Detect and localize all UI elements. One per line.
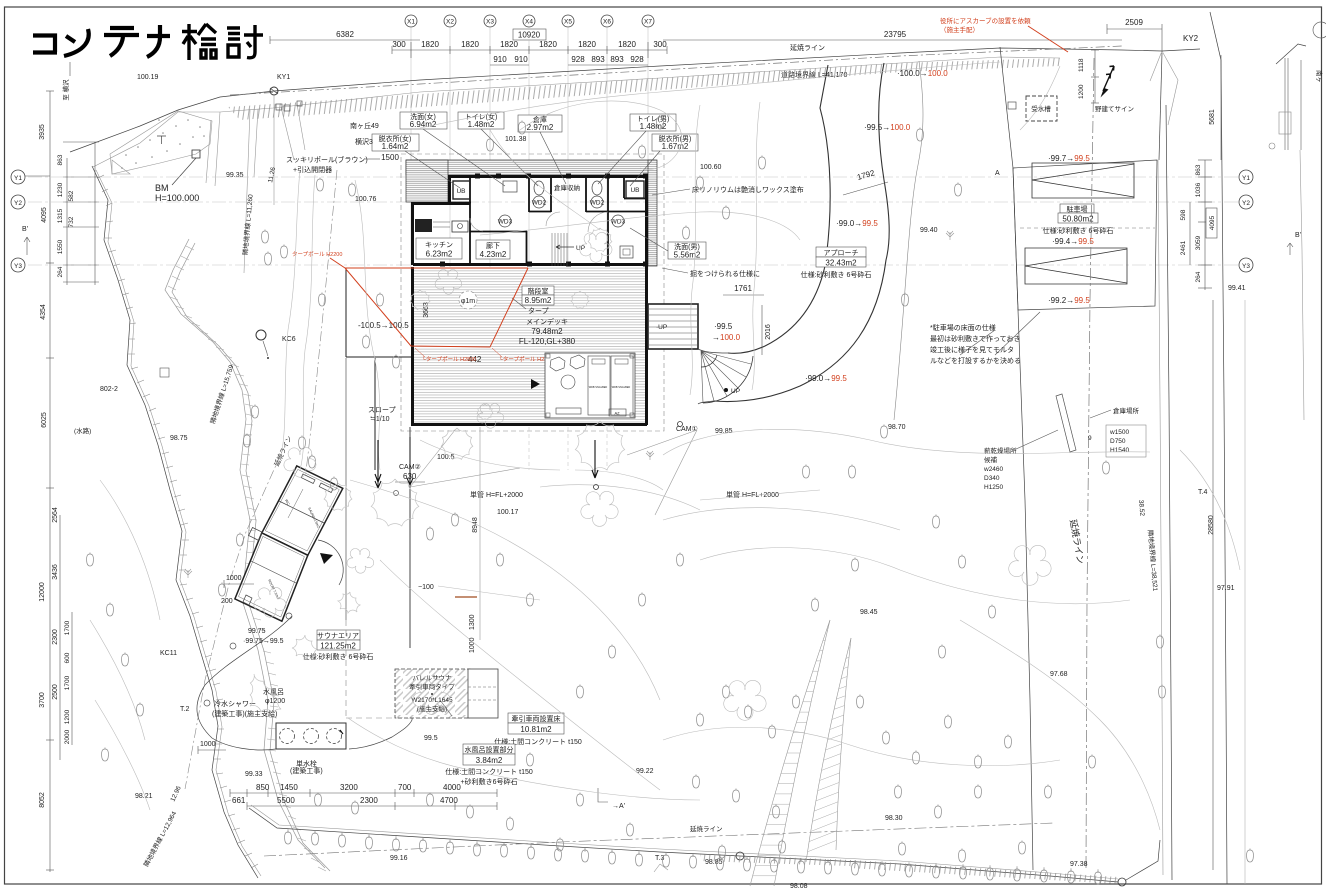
svg-text:5.56m2: 5.56m2: [674, 251, 701, 260]
svg-text:4354: 4354: [40, 304, 47, 320]
svg-text:(水路): (水路): [74, 426, 91, 435]
svg-text:WD2: WD2: [590, 200, 605, 207]
svg-text:倉庫場所: 倉庫場所: [1113, 406, 1140, 415]
svg-text:2016: 2016: [765, 324, 772, 340]
svg-text:キッチン: キッチン: [425, 241, 453, 249]
svg-text:1300: 1300: [469, 614, 476, 630]
svg-text:1315: 1315: [57, 208, 64, 223]
svg-text:1761: 1761: [734, 284, 752, 293]
svg-text:2000: 2000: [64, 729, 71, 744]
svg-text:893: 893: [591, 55, 605, 64]
svg-text:3935: 3935: [39, 124, 46, 140]
svg-text:(建築工事)(施主支給): (建築工事)(施主支給): [212, 709, 277, 718]
svg-text:·100.0→100.0: ·100.0→100.0: [897, 69, 948, 78]
svg-text:KC6: KC6: [282, 336, 296, 343]
svg-text:仕様:砂利敷き 6号砕石: 仕様:砂利敷き 6号砕石: [801, 270, 872, 279]
svg-text:南ヶ丘49: 南ヶ丘49: [350, 121, 379, 130]
svg-text:·99.4→99.5: ·99.4→99.5: [1052, 237, 1094, 246]
svg-text:ルなどを打設するかを決める: ルなどを打設するかを決める: [930, 356, 1021, 365]
svg-text:·UP: ·UP: [656, 324, 667, 331]
svg-text:97.38: 97.38: [1070, 861, 1088, 868]
svg-text:1820: 1820: [618, 40, 636, 49]
svg-text:99.35: 99.35: [226, 172, 244, 179]
svg-text:10920: 10920: [518, 31, 541, 40]
svg-text:100.19: 100.19: [137, 74, 159, 81]
svg-text:野建てサイン: 野建てサイン: [1095, 104, 1134, 113]
svg-text:·99.75→99.5: ·99.75→99.5: [243, 638, 284, 645]
svg-text:Y1: Y1: [14, 175, 22, 182]
svg-text:·99.2→99.5: ·99.2→99.5: [1048, 296, 1090, 305]
svg-text:単水栓: 単水栓: [296, 759, 317, 768]
svg-text:メインデッキ: メインデッキ: [526, 317, 568, 326]
svg-text:732: 732: [68, 216, 75, 227]
svg-text:タープポール H2200: タープポール H2200: [292, 250, 342, 258]
svg-text:X1: X1: [407, 19, 415, 26]
svg-text:928: 928: [630, 55, 644, 64]
svg-text:9: 9: [1088, 435, 1092, 442]
svg-text:−100: −100: [418, 584, 434, 591]
svg-text:8.95m2: 8.95m2: [525, 296, 552, 305]
svg-text:掘をつけられる仕様に: 掘をつけられる仕様に: [690, 269, 760, 278]
svg-text:→A': →A': [612, 803, 625, 810]
svg-text:6025: 6025: [41, 412, 48, 428]
svg-text:300: 300: [392, 40, 406, 49]
svg-text:スロープ: スロープ: [368, 406, 396, 414]
svg-text:単管 H=FL+2000: 単管 H=FL+2000: [726, 490, 779, 499]
svg-text:101.38: 101.38: [505, 136, 527, 143]
svg-text:50.80m2: 50.80m2: [1062, 215, 1094, 224]
svg-text:B': B': [1295, 232, 1301, 239]
svg-text:5681: 5681: [1209, 109, 1216, 125]
svg-text:802-2: 802-2: [100, 386, 118, 393]
svg-text:200: 200: [221, 598, 233, 605]
svg-text:X3: X3: [486, 19, 494, 26]
svg-text:候補: 候補: [984, 455, 998, 464]
svg-text:最初は砂利敷きで作っておき: 最初は砂利敷きで作っておき: [930, 334, 1020, 343]
svg-text:*駐車場の床面の仕様: *駐車場の床面の仕様: [930, 323, 996, 332]
svg-text:タープ: タープ: [528, 306, 549, 315]
svg-text:98.45: 98.45: [860, 609, 878, 616]
svg-text:100.76: 100.76: [355, 196, 377, 203]
svg-text:w2460: w2460: [983, 466, 1004, 473]
svg-text:98.21: 98.21: [135, 793, 153, 800]
svg-text:582: 582: [68, 190, 75, 201]
svg-text:99.33: 99.33: [245, 771, 263, 778]
svg-text:3059: 3059: [1195, 235, 1202, 250]
svg-text:5500: 5500: [277, 796, 295, 805]
svg-text:910: 910: [493, 55, 507, 64]
svg-text:28580: 28580: [1208, 515, 1215, 535]
svg-text:1700: 1700: [64, 675, 71, 690]
svg-text:牽引車両設置床: 牽引車両設置床: [512, 714, 561, 723]
svg-text:延焼ライン: 延焼ライン: [690, 824, 723, 833]
svg-text:T.2: T.2: [180, 706, 189, 713]
svg-text:1036: 1036: [1195, 182, 1202, 197]
svg-text:32.43m2: 32.43m2: [825, 259, 857, 268]
svg-text:1.48m2: 1.48m2: [468, 120, 495, 129]
svg-text:横沢3: 横沢3: [355, 137, 373, 146]
svg-text:B': B': [22, 226, 28, 233]
svg-text:3436: 3436: [52, 564, 59, 580]
svg-text:WD2: WD2: [532, 200, 547, 207]
svg-text:3200: 3200: [340, 783, 358, 792]
svg-text:10.81m2: 10.81m2: [520, 725, 552, 734]
svg-text:X7: X7: [644, 19, 652, 26]
svg-text:廊下: 廊下: [486, 241, 500, 250]
svg-text:UP: UP: [576, 245, 585, 252]
svg-text:D340: D340: [984, 475, 1000, 482]
svg-text:2564: 2564: [52, 507, 59, 523]
svg-text:1820: 1820: [500, 40, 518, 49]
svg-text:1.64m2: 1.64m2: [382, 142, 409, 151]
svg-text:2509: 2509: [1125, 18, 1143, 27]
svg-text:(建築工事): (建築工事): [290, 766, 323, 775]
svg-text:BM: BM: [155, 183, 169, 193]
svg-text:仕様:砂利敷き 6号砕石: 仕様:砂利敷き 6号砕石: [1043, 226, 1114, 235]
svg-text:99.40: 99.40: [920, 227, 938, 234]
svg-text:97.91: 97.91: [1217, 585, 1235, 592]
svg-text:階段室: 階段室: [528, 287, 549, 296]
svg-text:38.52: 38.52: [1137, 500, 1145, 517]
svg-text:1000: 1000: [200, 741, 216, 748]
svg-text:2300: 2300: [360, 796, 378, 805]
svg-text:99.85: 99.85: [715, 428, 733, 435]
svg-text:99.5: 99.5: [424, 735, 438, 742]
svg-text:φ1200: φ1200: [265, 698, 285, 705]
svg-text:D750: D750: [1110, 438, 1126, 445]
svg-text:2461: 2461: [1180, 240, 1187, 255]
svg-text:至 横沢: 至 横沢: [61, 79, 70, 101]
svg-text:264: 264: [57, 266, 64, 277]
svg-text:1820: 1820: [461, 40, 479, 49]
svg-text:(施主支給): (施主支給): [417, 704, 447, 713]
svg-text:UB: UB: [630, 187, 639, 194]
svg-text:·99.7→99.5: ·99.7→99.5: [1048, 154, 1090, 163]
svg-text:FL-120,GL+380: FL-120,GL+380: [519, 337, 576, 346]
svg-text:1700: 1700: [64, 620, 71, 635]
svg-text:UB: UB: [456, 188, 465, 195]
svg-text:·99.0→99.5: ·99.0→99.5: [836, 219, 878, 228]
svg-text:1820: 1820: [421, 40, 439, 49]
svg-text:98.70: 98.70: [888, 424, 906, 431]
svg-text:99.75: 99.75: [248, 628, 266, 635]
svg-text:+引込開閉器: +引込開閉器: [293, 165, 332, 174]
svg-text:-100.5→100.5: -100.5→100.5: [358, 321, 409, 330]
svg-text:延焼ライン: 延焼ライン: [790, 43, 825, 52]
svg-text:12000: 12000: [39, 582, 46, 602]
svg-text:98.08: 98.08: [790, 883, 808, 890]
svg-text:863: 863: [57, 154, 64, 165]
svg-text:X2: X2: [446, 19, 454, 26]
svg-text:100.60: 100.60: [700, 164, 722, 171]
svg-text:X5: X5: [564, 19, 572, 26]
svg-text:1550: 1550: [57, 239, 64, 254]
svg-text:23795: 23795: [884, 30, 907, 39]
svg-text:仕様:砂利敷き 6号砕石: 仕様:砂利敷き 6号砕石: [303, 652, 374, 661]
svg-text:99.16: 99.16: [390, 855, 408, 862]
svg-text:駐車場: 駐車場: [1067, 205, 1088, 214]
svg-text:WDB SNGLBED: WDB SNGLBED: [589, 386, 608, 389]
svg-text:·99.0→99.5: ·99.0→99.5: [805, 374, 847, 383]
svg-text:98.30: 98.30: [885, 815, 903, 822]
svg-text:水風呂設置部分: 水風呂設置部分: [465, 745, 514, 754]
svg-text:99.41: 99.41: [1228, 285, 1246, 292]
svg-text:893: 893: [610, 55, 624, 64]
svg-text:4095: 4095: [1209, 215, 1216, 230]
svg-text:A: A: [995, 170, 1000, 177]
svg-text:1200: 1200: [1078, 84, 1085, 99]
svg-text:1230: 1230: [57, 182, 64, 197]
svg-text:Y2: Y2: [14, 200, 22, 207]
svg-text:KY1: KY1: [277, 74, 290, 81]
svg-text:97.68: 97.68: [1050, 671, 1068, 678]
svg-text:928: 928: [571, 55, 585, 64]
svg-text:4700: 4700: [440, 796, 458, 805]
svg-text:φ1m: φ1m: [461, 298, 475, 305]
svg-text:AZ: AZ: [614, 411, 620, 416]
svg-text:700: 700: [398, 783, 412, 792]
svg-text:H=100.000: H=100.000: [155, 193, 199, 203]
svg-text:910: 910: [514, 55, 528, 64]
svg-text:W2170*L1645: W2170*L1645: [411, 697, 453, 704]
svg-text:H1250: H1250: [984, 484, 1004, 491]
svg-text:264: 264: [1195, 271, 1202, 282]
svg-text:単管 H=FL+2000: 単管 H=FL+2000: [470, 490, 523, 499]
svg-text:1000: 1000: [226, 575, 242, 582]
svg-text:6382: 6382: [336, 30, 354, 39]
svg-text:スッキリポール(ブラウン): スッキリポール(ブラウン): [286, 155, 368, 164]
svg-text:3700: 3700: [39, 692, 46, 708]
svg-text:300: 300: [653, 40, 667, 49]
svg-text:UP: UP: [731, 388, 740, 395]
svg-text:仕様:土間コンクリート t150: 仕様:土間コンクリート t150: [445, 767, 533, 776]
svg-text:KC11: KC11: [160, 650, 177, 657]
svg-text:121.25m2: 121.25m2: [320, 642, 356, 651]
svg-text:1500: 1500: [381, 153, 399, 162]
svg-text:（施主手配）: （施主手配）: [940, 25, 979, 34]
svg-text:3663: 3663: [423, 302, 430, 318]
svg-text:└タープポール H2800: └タープポール H2800: [422, 355, 476, 363]
svg-text:1200: 1200: [64, 709, 71, 724]
svg-text:1450: 1450: [280, 783, 298, 792]
svg-text:T.4: T.4: [1198, 489, 1207, 496]
svg-text:6.94m2: 6.94m2: [410, 120, 437, 129]
svg-text:受水槽: 受水槽: [1031, 104, 1051, 113]
svg-text:南ヶ: 南ヶ: [1315, 70, 1324, 83]
svg-text:→100.0: →100.0: [712, 333, 741, 342]
svg-text:倉庫収納: 倉庫収納: [554, 183, 580, 192]
svg-text:役所にアスカーブの設置を依頼: 役所にアスカーブの設置を依頼: [940, 16, 1031, 25]
svg-text:Y3: Y3: [1242, 263, 1250, 270]
svg-text:w1500: w1500: [1109, 429, 1130, 436]
svg-text:Y1: Y1: [1242, 175, 1250, 182]
svg-text:100.17: 100.17: [497, 509, 519, 516]
svg-text:1118: 1118: [1078, 58, 1085, 72]
svg-text:1820: 1820: [578, 40, 596, 49]
svg-text:79.48m2: 79.48m2: [531, 327, 563, 336]
svg-text:661: 661: [232, 796, 246, 805]
svg-text:WD3: WD3: [498, 219, 513, 226]
svg-text:WDB SNGLBED: WDB SNGLBED: [612, 386, 631, 389]
svg-text:H1540: H1540: [1110, 447, 1130, 454]
svg-text:8052: 8052: [39, 792, 46, 808]
svg-text:Y3: Y3: [14, 263, 22, 270]
svg-text:KY2: KY2: [1183, 34, 1199, 43]
svg-text:3.84m2: 3.84m2: [476, 756, 503, 765]
svg-text:598: 598: [1180, 209, 1187, 220]
svg-text:4000: 4000: [443, 783, 461, 792]
svg-text:X4: X4: [525, 19, 533, 26]
svg-text:床リノリウムは艶消しワックス塗布: 床リノリウムは艶消しワックス塗布: [692, 185, 804, 194]
svg-text:6.23m2: 6.23m2: [426, 250, 453, 259]
svg-text:Y2: Y2: [1242, 200, 1250, 207]
svg-text:·99.5→100.0: ·99.5→100.0: [864, 123, 911, 132]
svg-text:2500: 2500: [52, 684, 59, 700]
svg-text:850: 850: [256, 783, 270, 792]
svg-text:バレルサウナ: バレルサウナ: [413, 674, 452, 682]
svg-text:1820: 1820: [539, 40, 557, 49]
svg-text:2.97m2: 2.97m2: [527, 123, 554, 132]
svg-text:4095: 4095: [41, 207, 48, 223]
svg-text:アプローチ: アプローチ: [824, 249, 859, 257]
svg-text:水風呂: 水風呂: [263, 687, 284, 696]
svg-text:·99.5: ·99.5: [714, 322, 733, 331]
svg-text:1.67m2: 1.67m2: [662, 142, 689, 151]
svg-text:X6: X6: [603, 19, 611, 26]
svg-text:600: 600: [64, 652, 71, 663]
svg-text:863: 863: [1195, 164, 1202, 175]
svg-text:サウナエリア: サウナエリア: [317, 632, 359, 640]
svg-text:T.3: T.3: [655, 855, 664, 862]
svg-text:冷水シャワー: 冷水シャワー: [214, 699, 256, 708]
svg-text:4.23m2: 4.23m2: [480, 250, 507, 259]
svg-text:98.75: 98.75: [170, 435, 188, 442]
svg-text:2300: 2300: [52, 629, 59, 645]
